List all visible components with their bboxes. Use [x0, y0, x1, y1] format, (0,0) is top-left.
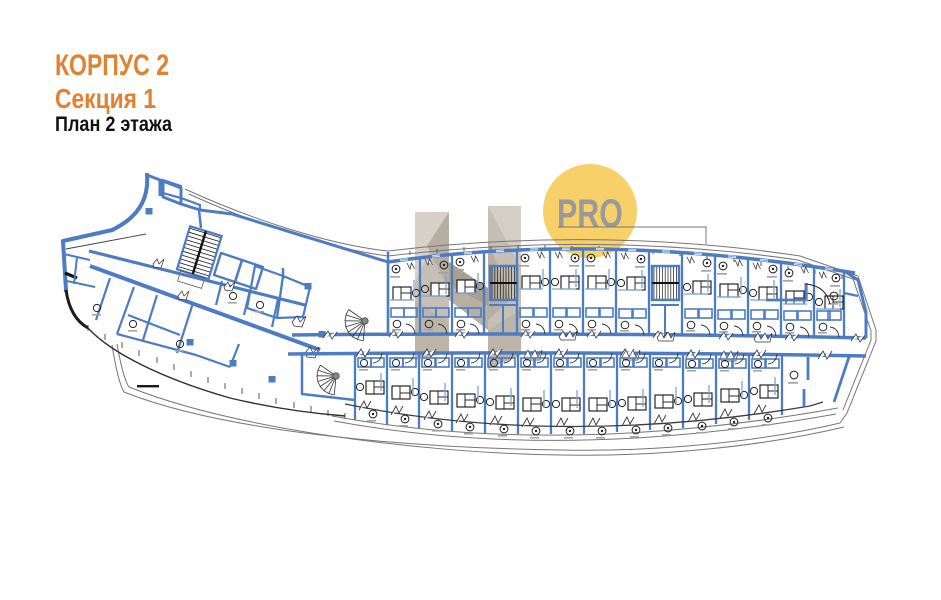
svg-text:Секция 1: Секция 1	[55, 83, 156, 114]
svg-text:PRO: PRO	[557, 191, 623, 236]
svg-text:КОРПУС 2: КОРПУС 2	[55, 49, 169, 82]
svg-text:План 2 этажа: План 2 этажа	[55, 113, 172, 136]
